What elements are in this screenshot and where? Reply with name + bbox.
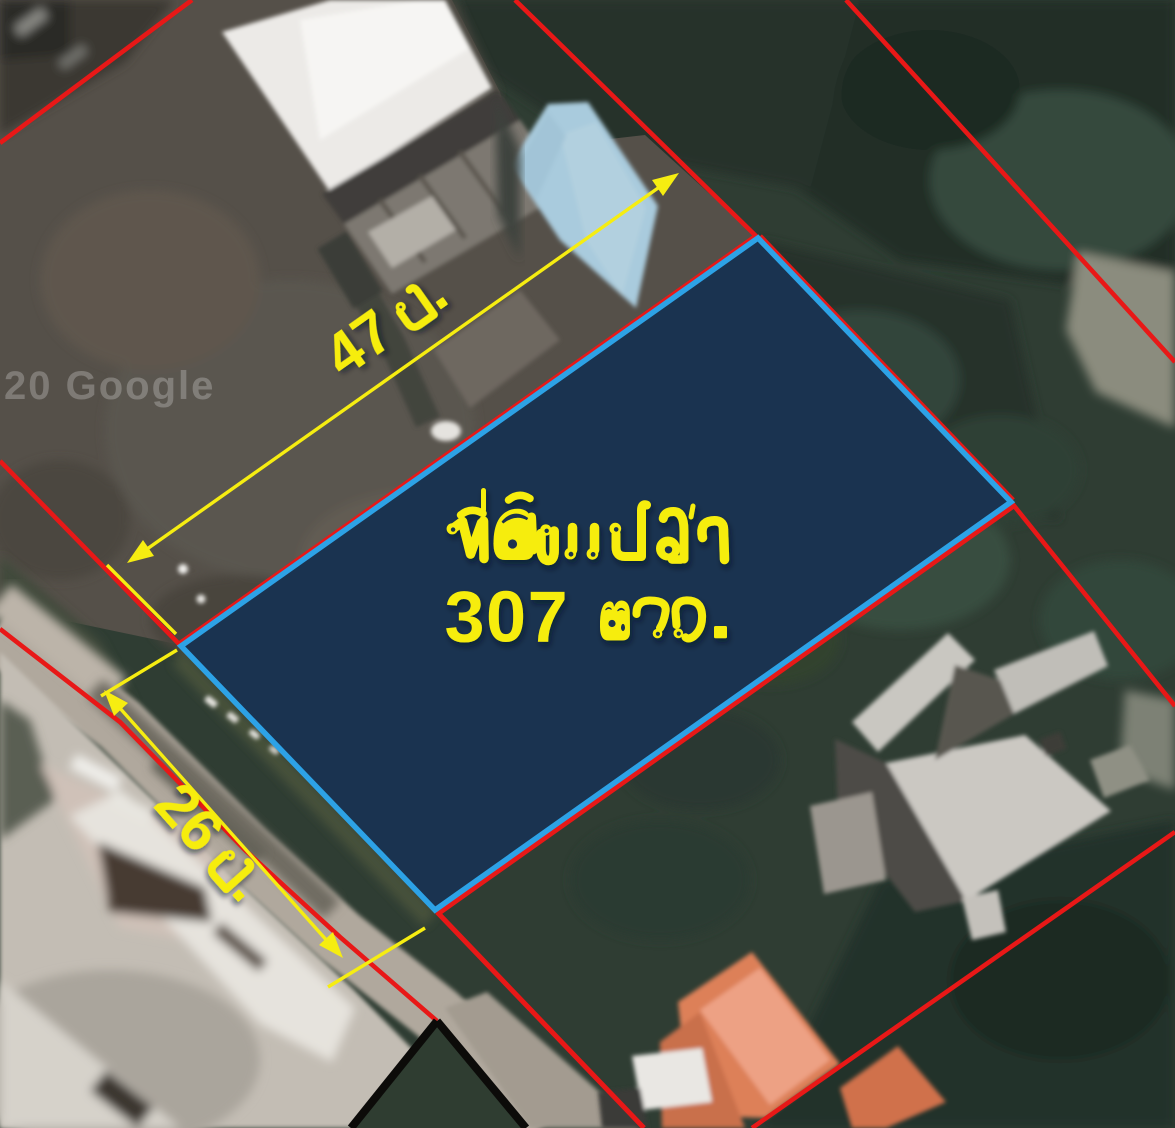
svg-text:307: 307 bbox=[445, 578, 570, 658]
svg-text:20 Google: 20 Google bbox=[4, 364, 215, 408]
